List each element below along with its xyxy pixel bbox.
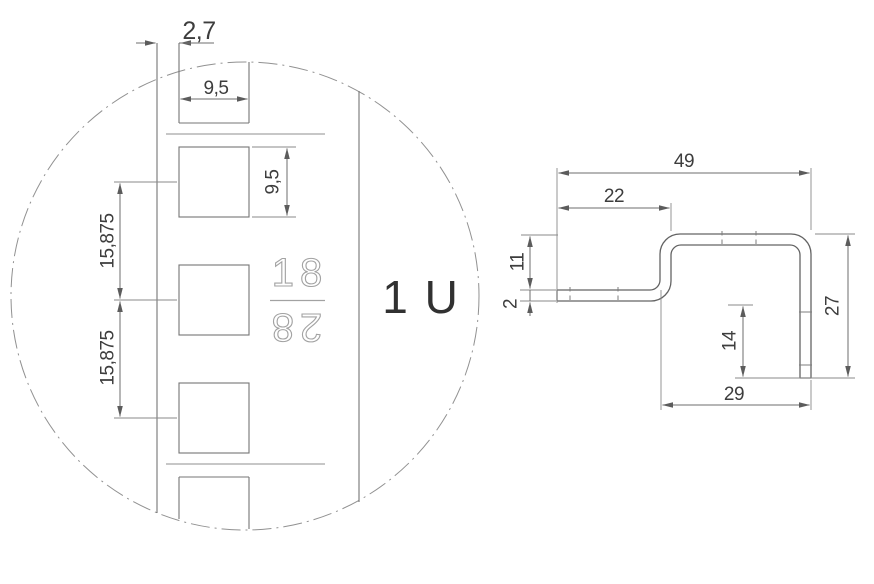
dim-material-thickness-label: 2 xyxy=(501,299,522,309)
hole-number-bottom: 28 xyxy=(266,305,323,349)
dim-hole-pitch-upper: 15,875 xyxy=(98,182,178,300)
dim-hole-pitch-upper-label: 15,875 xyxy=(98,213,119,268)
dim-overall-width-label: 49 xyxy=(674,151,694,172)
mounting-hole-4 xyxy=(179,383,249,453)
dim-hole-height: 9,5 xyxy=(252,147,296,217)
mounting-hole-5-clipped xyxy=(179,477,249,529)
rack-rail-drawing: 2,7 9,5 9,5 15,875 15,875 xyxy=(0,0,874,584)
dim-overall-height-label: 27 xyxy=(823,296,844,316)
hole-numbering: 18 28 xyxy=(266,251,329,349)
dim-overall-width: 49 xyxy=(559,151,810,173)
dim-hole-width: 9,5 xyxy=(181,78,248,99)
dim-edge-offset: 2,7 xyxy=(136,17,216,45)
unit-height-label: 1 U xyxy=(382,271,460,323)
detail-circle-view: 2,7 9,5 9,5 15,875 15,875 xyxy=(11,17,479,530)
dim-upper-flange-width: 22 xyxy=(559,186,670,208)
dim-step-height-label: 11 xyxy=(508,253,529,272)
dim-overall-height: 27 xyxy=(823,236,849,377)
dim-hole-pitch-lower-label: 15,875 xyxy=(98,330,119,385)
cross-section-view: 49 22 11 2 14 29 xyxy=(501,151,856,410)
mounting-hole-2 xyxy=(179,147,249,217)
dim-leg-extension: 14 xyxy=(720,307,744,377)
mounting-hole-3 xyxy=(179,265,249,335)
dim-step-height: 11 xyxy=(508,237,531,289)
dim-hole-height-label: 9,5 xyxy=(263,170,284,195)
dim-lower-width-label: 29 xyxy=(724,384,744,405)
dim-edge-offset-label: 2,7 xyxy=(182,17,215,45)
hole-number-top: 18 xyxy=(272,251,329,295)
dim-hole-width-label: 9,5 xyxy=(204,78,229,99)
dim-material-thickness: 2 xyxy=(501,290,531,316)
dim-hole-pitch-lower: 15,875 xyxy=(98,302,178,419)
profile-outline xyxy=(557,234,811,378)
dim-upper-flange-width-label: 22 xyxy=(604,186,624,207)
dim-leg-extension-label: 14 xyxy=(720,330,741,351)
technical-drawing-canvas: 2,7 9,5 9,5 15,875 15,875 xyxy=(0,0,874,584)
dim-lower-width: 29 xyxy=(663,384,810,405)
